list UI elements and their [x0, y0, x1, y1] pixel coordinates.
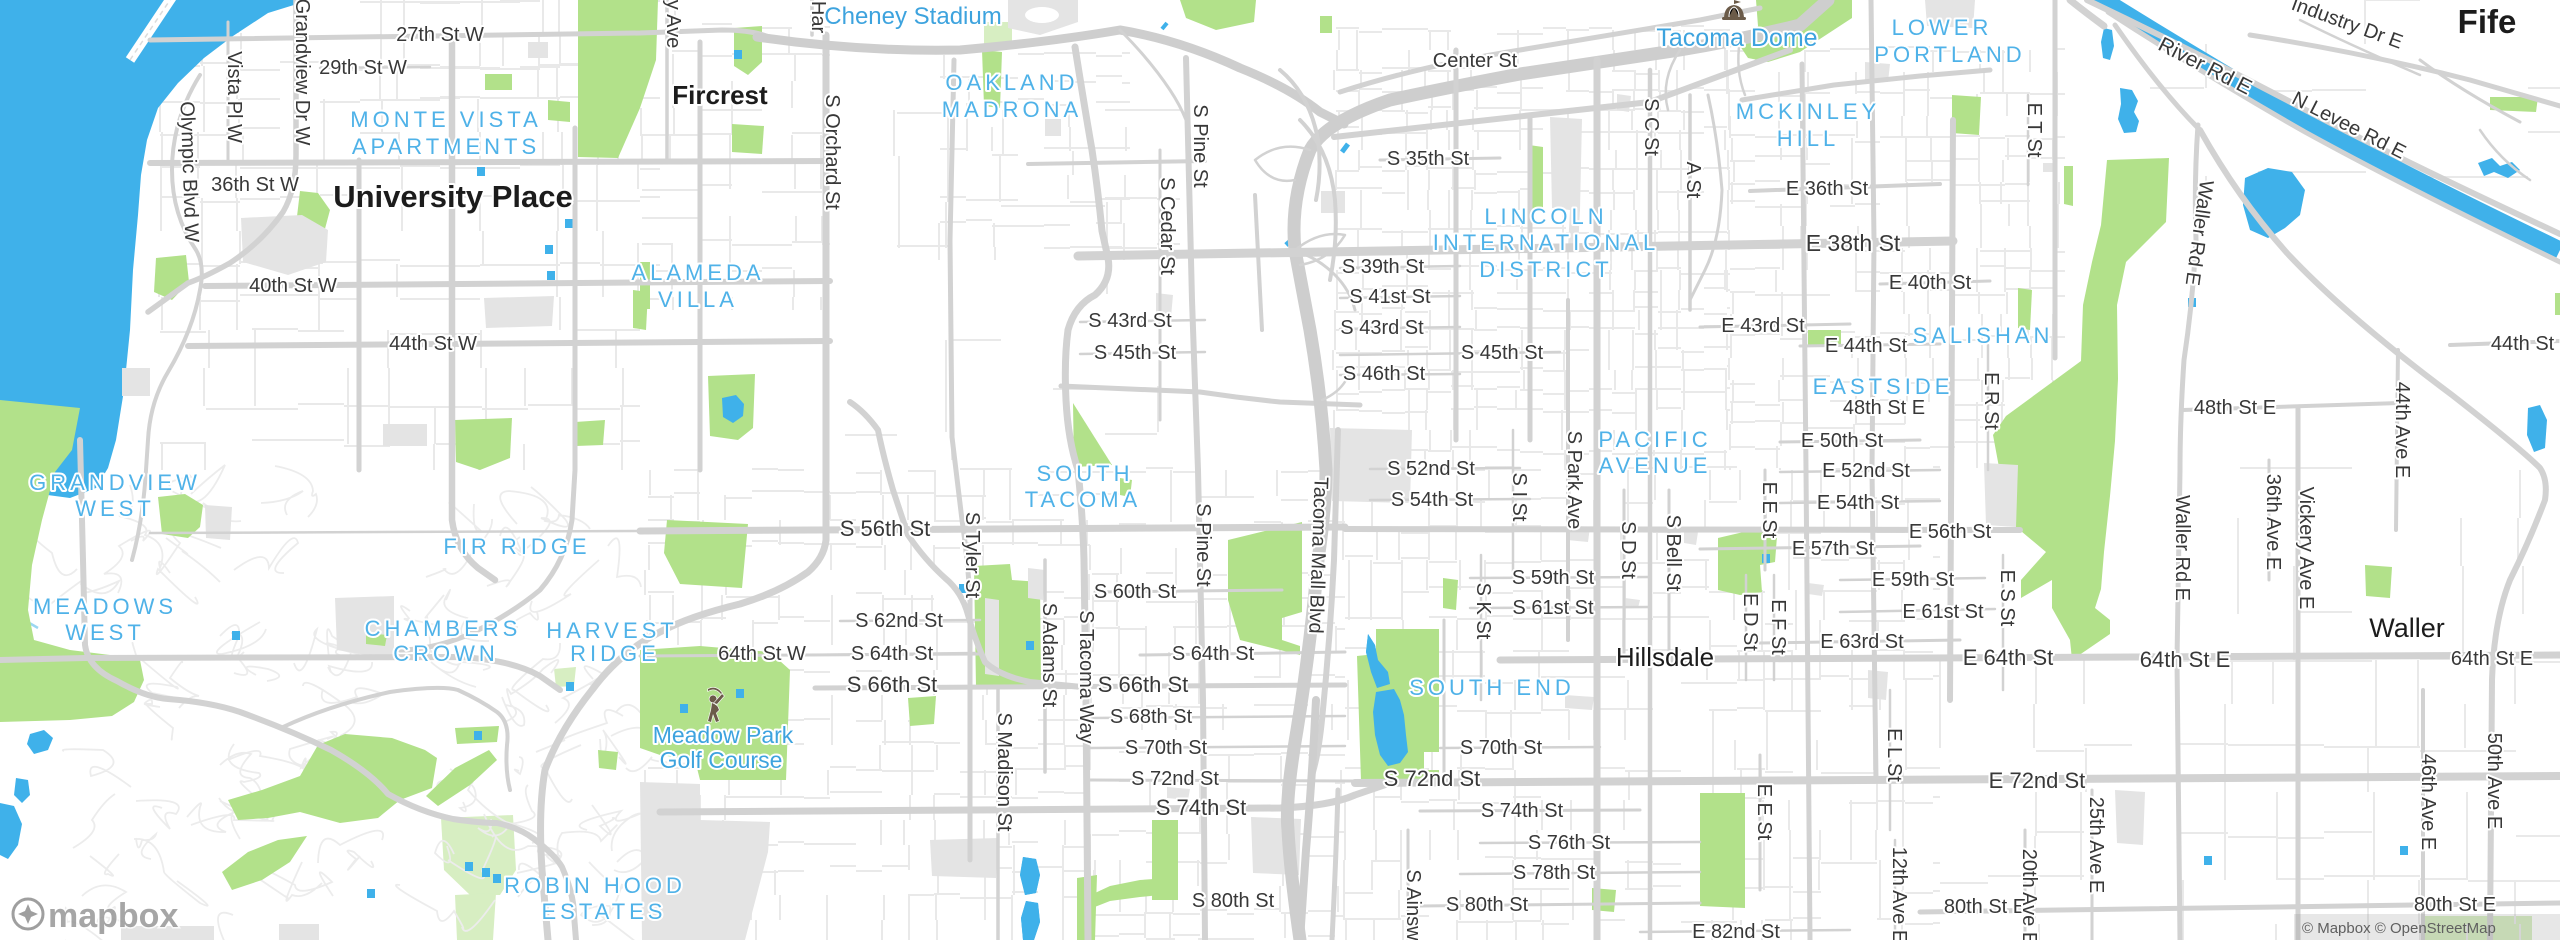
svg-text:44th St E: 44th St E: [2491, 333, 2560, 355]
svg-text:S Park Ave: S Park Ave: [1563, 431, 1585, 530]
svg-text:29th St W: 29th St W: [319, 57, 407, 79]
svg-text:y Ave: y Ave: [662, 0, 684, 48]
svg-text:S Ainsw: S Ainsw: [1402, 869, 1424, 940]
svg-text:S 56th St: S 56th St: [840, 516, 931, 541]
svg-text:Vickery Ave E: Vickery Ave E: [2295, 487, 2317, 610]
svg-text:S 60th St: S 60th St: [1094, 581, 1177, 603]
svg-text:ESTATES: ESTATES: [542, 899, 667, 924]
svg-text:E 82nd St: E 82nd St: [1692, 921, 1780, 940]
svg-text:RIDGE: RIDGE: [570, 641, 660, 666]
svg-text:Grandview Dr W: Grandview Dr W: [291, 0, 313, 145]
svg-text:MEADOWS: MEADOWS: [33, 594, 177, 619]
svg-text:S 35th St: S 35th St: [1387, 148, 1470, 170]
svg-text:E 50th St: E 50th St: [1801, 430, 1884, 452]
svg-text:S Adams St: S Adams St: [1038, 603, 1060, 708]
svg-text:S 74th St: S 74th St: [1156, 795, 1247, 820]
svg-text:Center St: Center St: [1433, 50, 1518, 72]
svg-text:S 78th St: S 78th St: [1513, 862, 1596, 884]
svg-text:VILLA: VILLA: [658, 287, 738, 312]
svg-text:27th St W: 27th St W: [396, 24, 484, 46]
svg-text:E 61st St: E 61st St: [1902, 601, 1984, 623]
svg-text:S 66th St: S 66th St: [1098, 672, 1189, 697]
svg-text:S K St: S K St: [1472, 583, 1494, 640]
svg-text:E S St: E S St: [1996, 570, 2018, 627]
svg-text:S 54th St: S 54th St: [1391, 489, 1474, 511]
svg-text:E 54th St: E 54th St: [1817, 492, 1900, 514]
svg-text:EASTSIDE: EASTSIDE: [1813, 374, 1954, 399]
svg-text:HARVEST: HARVEST: [546, 618, 678, 643]
svg-text:MCKINLEY: MCKINLEY: [1736, 99, 1880, 124]
svg-text:E D St: E D St: [1739, 593, 1761, 651]
svg-text:DISTRICT: DISTRICT: [1479, 257, 1612, 282]
svg-text:MADRONA: MADRONA: [942, 97, 1082, 122]
svg-text:S 76th St: S 76th St: [1528, 832, 1611, 854]
svg-text:E 56th St: E 56th St: [1909, 521, 1992, 543]
svg-text:S 68th St: S 68th St: [1110, 706, 1193, 728]
svg-text:HILL: HILL: [1777, 126, 1839, 151]
svg-text:E 38th St: E 38th St: [1806, 230, 1901, 256]
svg-text:S Tacoma Way: S Tacoma Way: [1075, 610, 1097, 743]
svg-text:Cheney Stadium: Cheney Stadium: [824, 3, 1001, 30]
svg-text:S 64th St: S 64th St: [851, 643, 934, 665]
svg-text:TACOMA: TACOMA: [1025, 487, 1141, 512]
svg-text:WEST: WEST: [75, 496, 155, 521]
svg-text:25th Ave E: 25th Ave E: [2085, 797, 2107, 893]
svg-text:S Bell St: S Bell St: [1662, 515, 1684, 592]
svg-text:FIR RIDGE: FIR RIDGE: [443, 534, 590, 559]
svg-text:S 45th St: S 45th St: [1461, 342, 1544, 364]
svg-text:40th St W: 40th St W: [249, 275, 337, 297]
svg-text:12th Ave E: 12th Ave E: [1888, 847, 1910, 940]
svg-text:S 46th St: S 46th St: [1343, 363, 1426, 385]
svg-text:OAKLAND: OAKLAND: [945, 70, 1078, 95]
svg-text:ROBIN HOOD: ROBIN HOOD: [504, 873, 686, 898]
svg-text:A St: A St: [1682, 162, 1704, 199]
svg-text:S 52nd St: S 52nd St: [1387, 458, 1475, 480]
svg-text:44th Ave E: 44th Ave E: [2391, 382, 2413, 478]
svg-text:GRANDVIEW: GRANDVIEW: [29, 470, 201, 495]
svg-text:S 74th St: S 74th St: [1481, 800, 1564, 822]
svg-text:20th Ave E: 20th Ave E: [2018, 849, 2040, 940]
svg-text:S 64th St: S 64th St: [1172, 643, 1255, 665]
svg-text:S Tyler St: S Tyler St: [961, 512, 983, 599]
svg-text:ALAMEDA: ALAMEDA: [631, 260, 764, 285]
svg-text:80th St E: 80th St E: [2414, 894, 2496, 916]
svg-text:S 39th St: S 39th St: [1342, 256, 1425, 278]
svg-text:S 70th St: S 70th St: [1460, 737, 1543, 759]
svg-text:LINCOLN: LINCOLN: [1484, 204, 1607, 229]
svg-text:S 45th St: S 45th St: [1094, 342, 1177, 364]
svg-text:AVENUE: AVENUE: [1599, 453, 1712, 478]
svg-text:SOUTH END: SOUTH END: [1409, 675, 1575, 700]
svg-text:E E St: E E St: [1753, 784, 1775, 841]
svg-text:S 43rd St: S 43rd St: [1340, 317, 1424, 339]
svg-text:E T St: E T St: [2023, 103, 2045, 158]
svg-text:E 57th St: E 57th St: [1792, 538, 1875, 560]
svg-text:44th St W: 44th St W: [389, 333, 477, 355]
svg-text:36th Ave E: 36th Ave E: [2262, 474, 2284, 570]
svg-text:S 72nd St: S 72nd St: [1384, 766, 1481, 791]
svg-text:S 43rd St: S 43rd St: [1088, 310, 1172, 332]
svg-text:Vista Pl W: Vista Pl W: [223, 51, 245, 143]
svg-text:S 72nd St: S 72nd St: [1131, 768, 1219, 790]
svg-text:S Madison St: S Madison St: [993, 713, 1015, 832]
svg-text:S 80th St: S 80th St: [1446, 894, 1529, 916]
svg-text:E 63rd St: E 63rd St: [1820, 631, 1904, 653]
svg-text:46th Ave E: 46th Ave E: [2417, 754, 2439, 850]
svg-text:S I St: S I St: [1508, 473, 1530, 522]
svg-text:80th St E: 80th St E: [1944, 896, 2026, 918]
svg-text:S Pine St: S Pine St: [1192, 503, 1214, 587]
svg-text:64th St W: 64th St W: [718, 643, 806, 665]
svg-text:E 52nd St: E 52nd St: [1822, 460, 1910, 482]
svg-text:E L St: E L St: [1883, 728, 1905, 782]
svg-text:48th St E: 48th St E: [1843, 397, 1925, 419]
svg-text:S Cedar St: S Cedar St: [1156, 177, 1178, 275]
svg-text:mapbox: mapbox: [48, 897, 178, 935]
svg-text:S 61st St: S 61st St: [1512, 597, 1594, 619]
svg-text:E F St: E F St: [1767, 599, 1789, 655]
svg-text:S 70th St: S 70th St: [1125, 737, 1208, 759]
svg-text:E 36th St: E 36th St: [1786, 178, 1869, 200]
svg-text:Waller: Waller: [2369, 613, 2445, 643]
svg-text:E 64th St: E 64th St: [1963, 645, 2054, 670]
svg-text:Fircrest: Fircrest: [672, 80, 768, 110]
svg-text:S C St: S C St: [1640, 98, 1662, 156]
svg-text:PORTLAND: PORTLAND: [1874, 42, 2025, 67]
svg-text:Golf Course: Golf Course: [660, 747, 783, 773]
svg-text:64th St E: 64th St E: [2451, 648, 2533, 670]
svg-text:S 66th St: S 66th St: [847, 672, 938, 697]
svg-text:University Place: University Place: [333, 179, 573, 214]
svg-text:E 59th St: E 59th St: [1872, 569, 1955, 591]
svg-text:S D St: S D St: [1617, 521, 1639, 579]
svg-text:S 41st St: S 41st St: [1349, 286, 1431, 308]
svg-text:S 62nd St: S 62nd St: [855, 610, 943, 632]
svg-text:E R St: E R St: [1980, 372, 2002, 430]
svg-text:INTERNATIONAL: INTERNATIONAL: [1433, 230, 1659, 255]
svg-text:MONTE VISTA: MONTE VISTA: [350, 107, 542, 132]
svg-text:Waller Rd E: Waller Rd E: [2171, 495, 2193, 601]
svg-text:E 44th St: E 44th St: [1825, 335, 1908, 357]
svg-text:CHAMBERS: CHAMBERS: [365, 616, 522, 641]
svg-text:S 59th St: S 59th St: [1512, 567, 1595, 589]
svg-text:SALISHAN: SALISHAN: [1913, 323, 2054, 348]
svg-text:CROWN: CROWN: [393, 641, 499, 666]
svg-text:E E St: E E St: [1758, 482, 1780, 539]
svg-text:36th St W: 36th St W: [211, 174, 299, 196]
svg-text:E 43rd St: E 43rd St: [1721, 315, 1805, 337]
svg-text:WEST: WEST: [65, 620, 145, 645]
svg-text:LOWER: LOWER: [1892, 15, 1993, 40]
svg-text:SOUTH: SOUTH: [1037, 461, 1134, 486]
svg-text:S Pine St: S Pine St: [1189, 104, 1211, 188]
svg-text:Hillsdale: Hillsdale: [1616, 642, 1714, 672]
svg-text:© Mapbox © OpenStreetMap: © Mapbox © OpenStreetMap: [2302, 920, 2496, 937]
svg-text:E 40th St: E 40th St: [1889, 272, 1972, 294]
svg-text:48th St E: 48th St E: [2194, 397, 2276, 419]
svg-text:Fife: Fife: [2458, 3, 2517, 40]
svg-text:PACIFIC: PACIFIC: [1598, 427, 1711, 452]
svg-text:E 72nd St: E 72nd St: [1989, 768, 2086, 793]
svg-text:APARTMENTS: APARTMENTS: [352, 134, 540, 159]
svg-text:Tacoma Dome: Tacoma Dome: [1656, 24, 1817, 52]
svg-text:S Orchard St: S Orchard St: [821, 94, 843, 210]
svg-text:50th Ave E: 50th Ave E: [2483, 733, 2505, 829]
svg-text:64th St E: 64th St E: [2140, 647, 2231, 672]
svg-text:Meadow Park: Meadow Park: [653, 722, 794, 748]
svg-text:S 80th St: S 80th St: [1192, 890, 1275, 912]
